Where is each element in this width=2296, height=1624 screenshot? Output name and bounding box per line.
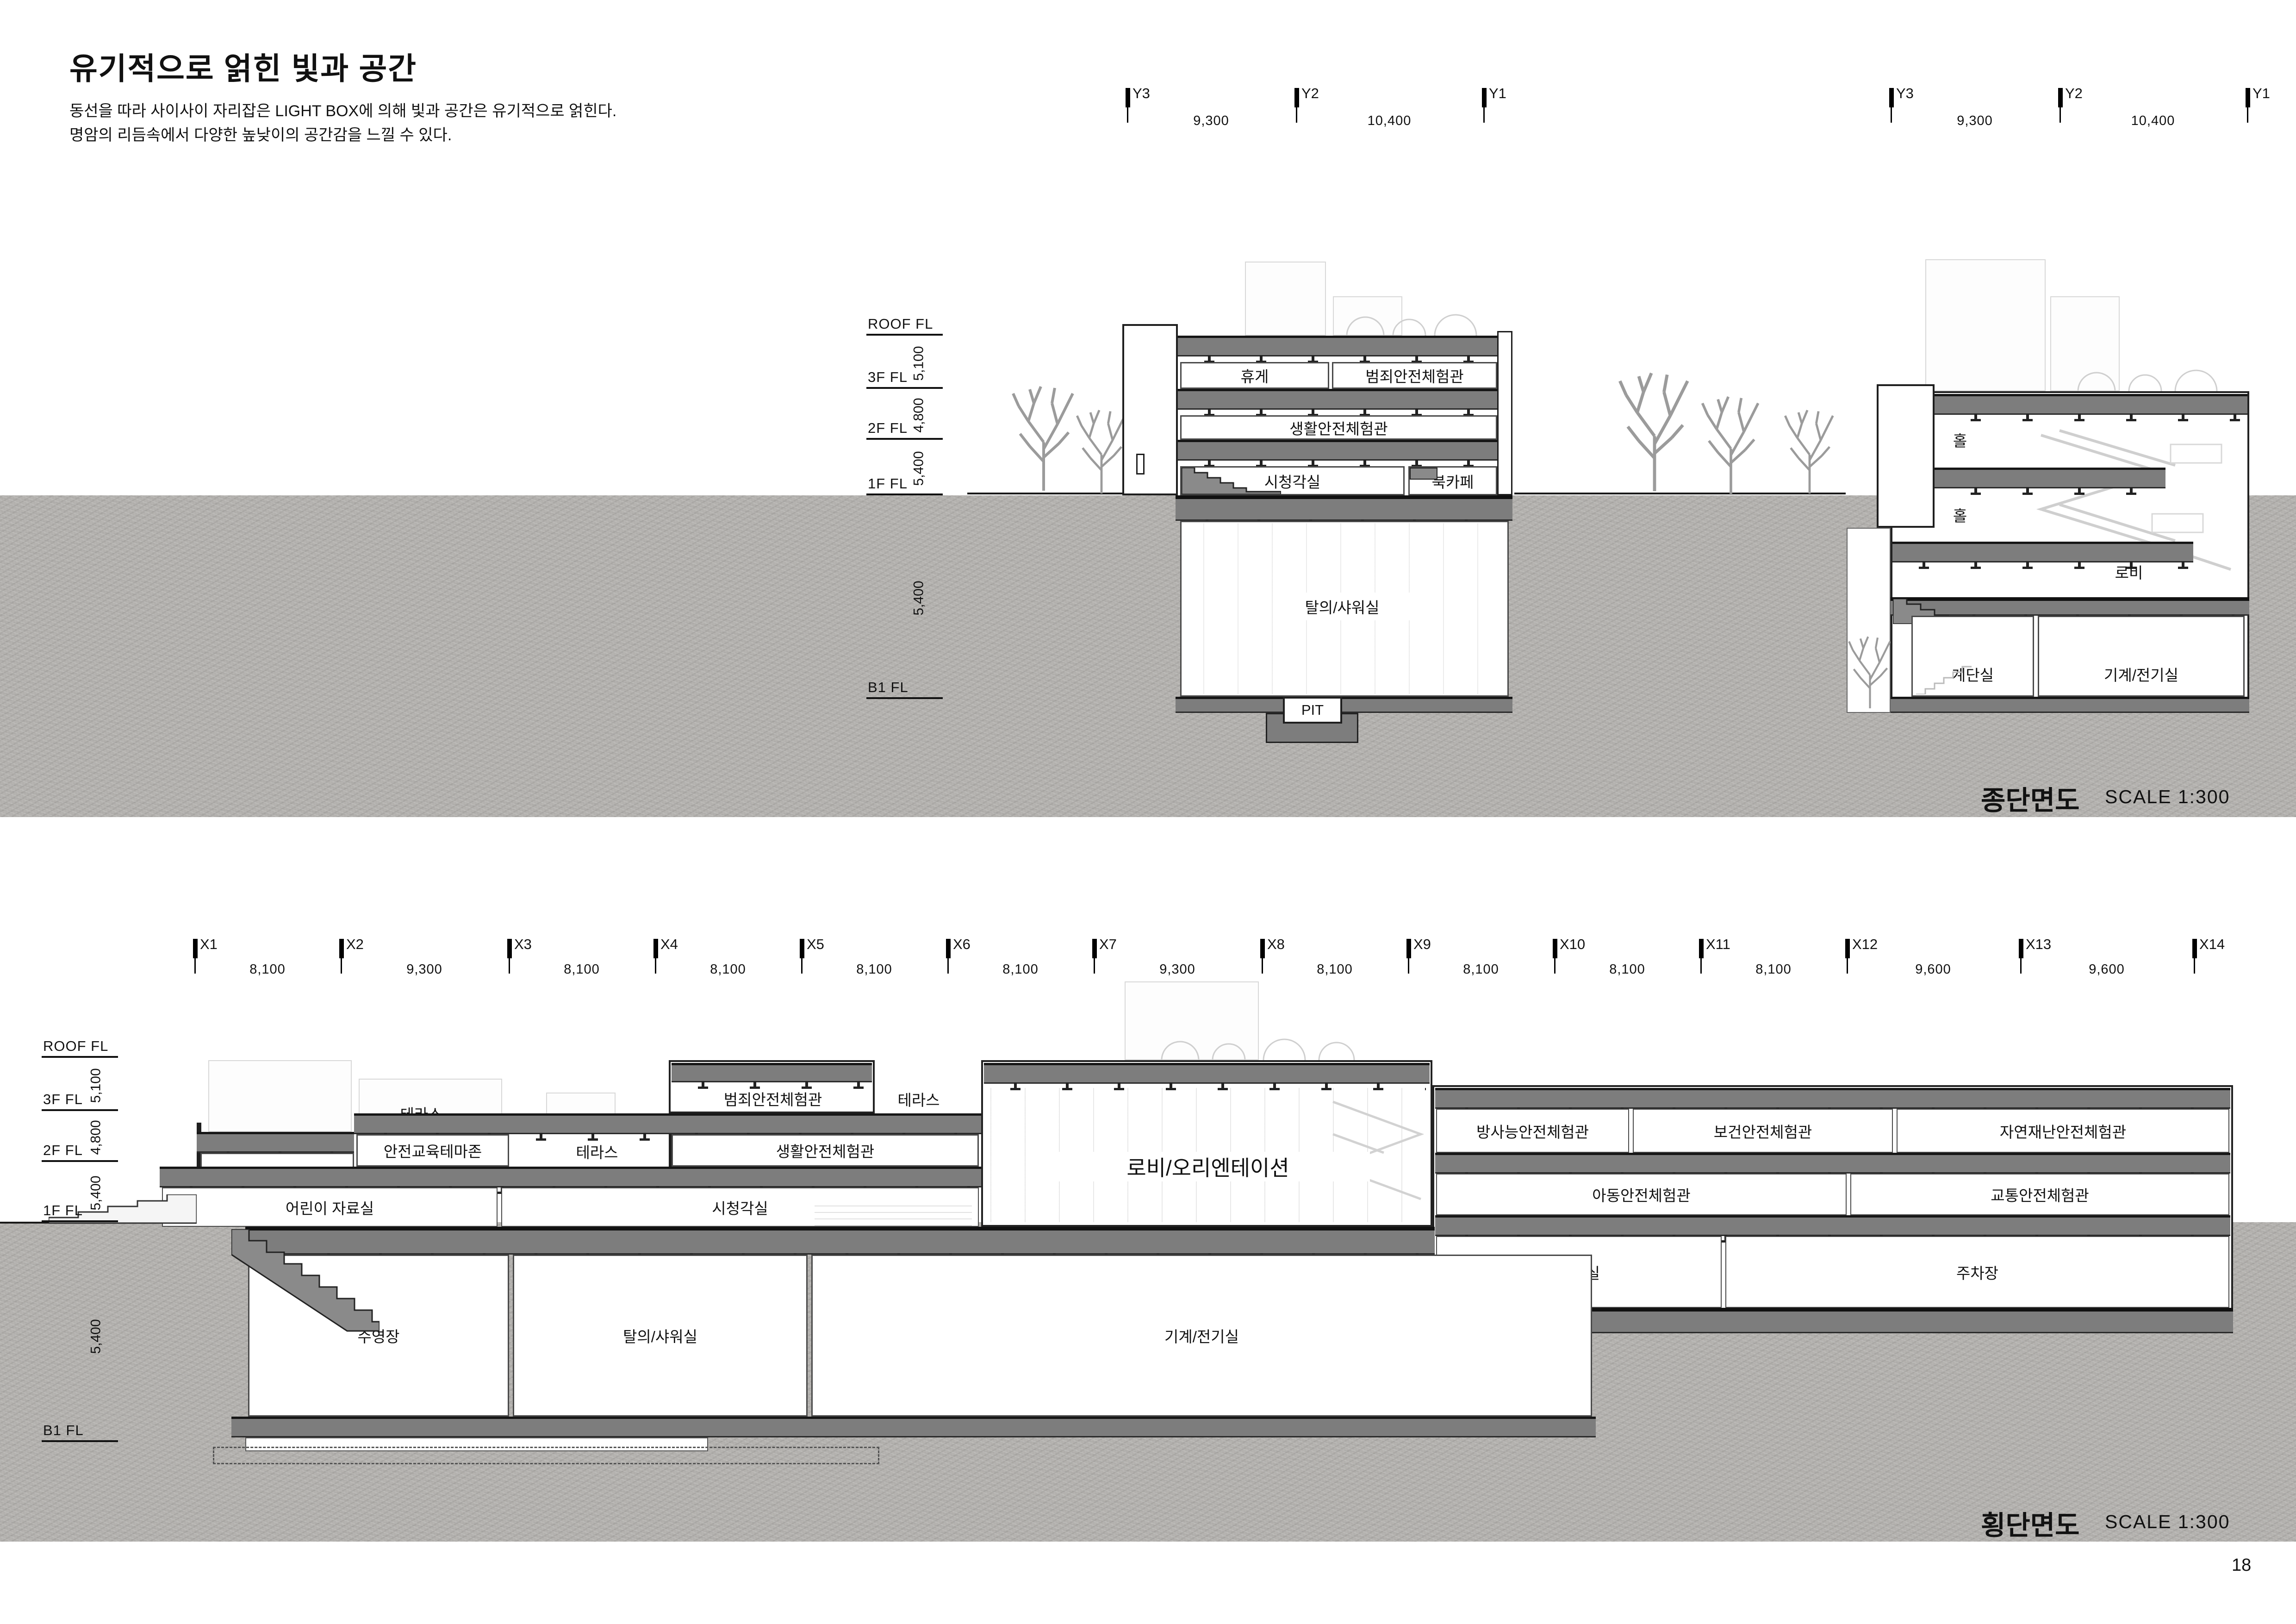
room-label: 주차장: [1956, 1261, 1998, 1283]
grid-tick-x2: X2: [341, 939, 342, 974]
grid-label: X4: [660, 936, 678, 953]
grid-tick-x11: X11: [1700, 939, 1702, 974]
floor-slab-1f: [1176, 495, 1512, 521]
grid-tick-x6: X6: [947, 939, 949, 974]
grid-dim: 8,100: [710, 962, 746, 977]
level-label: 1F FL: [43, 1202, 83, 1219]
grid-label: X14: [2199, 936, 2225, 953]
room-life-safety: 생활안전체험관: [1180, 415, 1497, 440]
room-health: 보건안전체험관: [1633, 1109, 1893, 1153]
page-title: 유기적으로 얽힌 빛과 공간: [69, 44, 417, 88]
room-edu-zone: 안전교육테마존: [356, 1134, 509, 1167]
grid-dim: 9,300: [406, 962, 442, 977]
grid-dim: 9,600: [1915, 962, 1951, 977]
roof-outline: [208, 1060, 352, 1132]
grid-dim: 8,100: [1463, 962, 1499, 977]
grid-tick-x14: X14: [2194, 939, 2195, 974]
room-label: 자연재난안전체험관: [2000, 1120, 2126, 1142]
room-label: 범죄안전체험관: [1365, 364, 1464, 387]
room-lobby: 로비: [2083, 558, 2175, 586]
grid-tick-x5: X5: [801, 939, 803, 974]
room-kids: 어린이 자료실: [162, 1187, 498, 1227]
level-label: 3F FL: [868, 369, 908, 386]
stair-tower: [1877, 384, 1935, 528]
roof-domes: [1342, 314, 1495, 336]
grid-label: X7: [1099, 936, 1117, 953]
grid-dim: 9,600: [2089, 962, 2125, 977]
grid-label: Y1: [1489, 85, 1506, 102]
grid-label: X10: [1560, 936, 1585, 953]
deck-slab-3f: [354, 1113, 981, 1134]
level-label: 3F FL: [43, 1091, 83, 1108]
room-label: 시청각실: [712, 1196, 768, 1218]
room-label: 보건안전체험관: [1714, 1120, 1812, 1142]
grand-stair: [231, 1229, 380, 1347]
grid-dim: 10,400: [1368, 113, 1412, 129]
grid-tick-y2-a: Y2: [1296, 88, 1297, 123]
cross-section-title: 횡단면도: [1981, 1504, 2079, 1543]
grid-dim: 8,100: [1755, 962, 1792, 977]
room-rest: 휴게: [1180, 362, 1329, 389]
grid-tick-y2-b: Y2: [2060, 88, 2061, 123]
room-life-safety-c: 생활안전체험관: [672, 1134, 979, 1167]
roof-slab: [1892, 394, 2247, 415]
library-roof-slab: [197, 1132, 354, 1153]
stair-steps: [1182, 468, 1281, 494]
room-traffic: 교통안전체험관: [1850, 1174, 2229, 1215]
level-label: B1 FL: [43, 1422, 84, 1439]
grid-tick-x12: X12: [1847, 939, 1848, 974]
room-label: 어린이 자료실: [286, 1196, 374, 1218]
grid-label: Y3: [1896, 85, 1914, 102]
grid-label: X6: [953, 936, 971, 953]
grid-label: Y3: [1132, 85, 1150, 102]
grid-label: X5: [807, 936, 824, 953]
room-label: 생활안전체험관: [776, 1139, 875, 1162]
room-label: 휴게: [1241, 364, 1269, 387]
grid-tick-x1: X1: [194, 939, 196, 974]
level-dim: 5,100: [88, 1068, 104, 1103]
elev-shaft: [1497, 331, 1512, 495]
grid-tick-y3-a: Y3: [1127, 88, 1128, 123]
room-label: 북카페: [1431, 470, 1474, 492]
floor-slab-1f-c: [245, 1227, 1435, 1255]
roof-domes: [2073, 369, 2240, 391]
level-dim: 4,800: [88, 1120, 104, 1155]
intro-line-2: 명암의 리듬속에서 다양한 높낮이의 공간감을 느낄 수 있다.: [69, 122, 452, 145]
grid-dim: 8,100: [564, 962, 600, 977]
level-dim: 5,400: [88, 1319, 104, 1354]
room-label: 방사능안전체험관: [1476, 1120, 1589, 1142]
room-shower-label-cover: 탈의/샤워실: [1273, 593, 1412, 620]
floor-slab-2f: [1178, 440, 1500, 461]
room-label: 교통안전체험관: [1991, 1183, 2089, 1206]
level-label: B1 FL: [868, 679, 908, 696]
level-label: 2F FL: [868, 420, 908, 437]
tree-icon: [1074, 403, 1129, 495]
b1-slab: [1176, 697, 1512, 713]
pit-box: PIT: [1283, 697, 1342, 724]
grid-tick-y3-b: Y3: [1891, 88, 1892, 123]
room-label: PIT: [1301, 702, 1324, 718]
roof-slab: [1178, 336, 1500, 356]
tree-icon: [1782, 403, 1837, 495]
grid-label: X12: [1852, 936, 1878, 953]
grid-dim: 9,300: [1193, 113, 1229, 129]
level-1f-top: 1F FL: [866, 478, 943, 495]
right-slab-3f: [1435, 1153, 2230, 1174]
level-dim: 5,400: [911, 581, 927, 615]
room-mech: 기계/전기실: [2038, 616, 2245, 697]
room-crime-hall: 범죄안전체험관: [1332, 362, 1497, 389]
longitudinal-section-title: 종단면도: [1981, 779, 2079, 818]
room-crime-c: 범죄안전체험관: [694, 1086, 852, 1111]
level-dim: 5,100: [911, 346, 927, 381]
right-slab-2f: [1435, 1215, 2230, 1236]
lobby-roof-slab: [984, 1063, 1430, 1084]
grid-dim: 10,400: [2131, 113, 2175, 129]
room-mech-c: 기계/전기실: [811, 1255, 1592, 1417]
level-2f-bottom: 2F FL: [42, 1144, 118, 1162]
grid-tick-y1-b: Y1: [2247, 88, 2248, 123]
grid-tick-x4: X4: [655, 939, 656, 974]
grid-tick-x13: X13: [2020, 939, 2022, 974]
grid-dim: 8,100: [1317, 962, 1353, 977]
tree-icon: [1846, 632, 1894, 708]
level-dim: 4,800: [911, 398, 927, 432]
room-terrace-3f-right: 테라스: [865, 1087, 972, 1111]
tree-icon: [1699, 389, 1763, 495]
room-parking: 주차장: [1725, 1236, 2229, 1308]
grid-label: Y1: [2252, 85, 2270, 102]
stair-tower: [1122, 324, 1178, 495]
grid-label: X2: [346, 936, 364, 953]
room-terrace-2f: 테라스: [537, 1140, 657, 1163]
presentation-page: 유기적으로 얽힌 빛과 공간 동선을 따라 사이사이 자리잡은 LIGHT BO…: [0, 0, 2296, 1624]
level-label: 1F FL: [868, 475, 908, 492]
level-3f-top: 3F FL: [866, 371, 943, 389]
level-3f-bottom: 3F FL: [42, 1093, 118, 1111]
roof-outline: [1245, 262, 1326, 336]
grid-label: X8: [1267, 936, 1285, 953]
grid-dim: 9,300: [1159, 962, 1195, 977]
level-b1-bottom: B1 FL: [42, 1424, 118, 1442]
tree-icon: [1615, 361, 1694, 495]
bookcafe-step: [1410, 468, 1437, 480]
longitudinal-section-scale: SCALE 1:300: [2105, 786, 2230, 808]
grid-dim: 9,300: [1957, 113, 1993, 129]
page-number: 18: [2232, 1555, 2251, 1575]
room-radiation: 방사능안전체험관: [1436, 1109, 1629, 1153]
room-label: 탈의/샤워실: [623, 1324, 697, 1347]
grid-label: Y2: [1301, 85, 1319, 102]
level-label: 2F FL: [43, 1142, 83, 1159]
grid-dim: 8,100: [856, 962, 892, 977]
room-disaster: 자연재난안전체험관: [1897, 1109, 2229, 1153]
b1-slab-c: [231, 1417, 1596, 1437]
grid-label: X1: [200, 936, 218, 953]
grid-tick-x9: X9: [1408, 939, 1409, 974]
grid-label: X13: [2026, 936, 2051, 953]
roof-outline: [1925, 259, 2046, 391]
b1-slab: [1891, 697, 2249, 713]
level-roof-bottom: ROOF FL: [42, 1040, 118, 1058]
room-label: 기계/전기실: [1164, 1324, 1239, 1347]
level-1f-bottom: 1F FL: [42, 1205, 118, 1222]
room-label: 안전교육테마존: [384, 1139, 482, 1162]
foundation-dashed: [213, 1447, 879, 1464]
grid-dim: 8,100: [1609, 962, 1645, 977]
grid-tick-x3: X3: [509, 939, 510, 974]
crime-roof-slab: [672, 1063, 872, 1082]
grid-dim: 8,100: [249, 962, 286, 977]
grid-label: X11: [1706, 936, 1730, 953]
level-roof-top: ROOF FL: [866, 318, 943, 336]
level-dim: 5,400: [88, 1175, 104, 1210]
level-2f-top: 2F FL: [866, 422, 943, 440]
level-label: ROOF FL: [868, 316, 933, 332]
room-shower-c: 탈의/샤워실: [513, 1255, 808, 1417]
room-label: 아동안전체험관: [1592, 1183, 1691, 1206]
room-child: 아동안전체험관: [1436, 1174, 1847, 1215]
grid-label: X3: [514, 936, 532, 953]
right-roof-slab: [1435, 1088, 2230, 1109]
room-label: 생활안전체험관: [1289, 417, 1388, 439]
level-b1-top: B1 FL: [866, 681, 943, 699]
av-tier-seats: [815, 1204, 972, 1226]
roof-domes: [1157, 1038, 1398, 1060]
grid-label: Y2: [2065, 85, 2083, 102]
grid-tick-y1-a: Y1: [1483, 88, 1485, 123]
grid-label: X9: [1413, 936, 1431, 953]
grid-tick-x10: X10: [1554, 939, 1556, 974]
grid-tick-x8: X8: [1262, 939, 1263, 974]
floor-slab-2f-c: [160, 1167, 981, 1187]
cross-section-scale: SCALE 1:300: [2105, 1511, 2230, 1533]
tree-icon: [1009, 375, 1078, 495]
floor-slab-3f: [1178, 389, 1500, 410]
grid-tick-x7: X7: [1094, 939, 1095, 974]
level-label: ROOF FL: [43, 1038, 108, 1055]
level-dim: 5,400: [911, 451, 927, 486]
stair-lines: [1916, 657, 1990, 694]
intro-line-1: 동선을 따라 사이사이 자리잡은 LIGHT BOX에 의해 빛과 공간은 유기…: [69, 98, 616, 121]
room-label: 기계/전기실: [2104, 663, 2178, 685]
tower-window: [1136, 454, 1145, 475]
grid-dim: 8,100: [1002, 962, 1039, 977]
room-lobby-c: 로비/오리엔테이션: [1046, 1152, 1370, 1181]
